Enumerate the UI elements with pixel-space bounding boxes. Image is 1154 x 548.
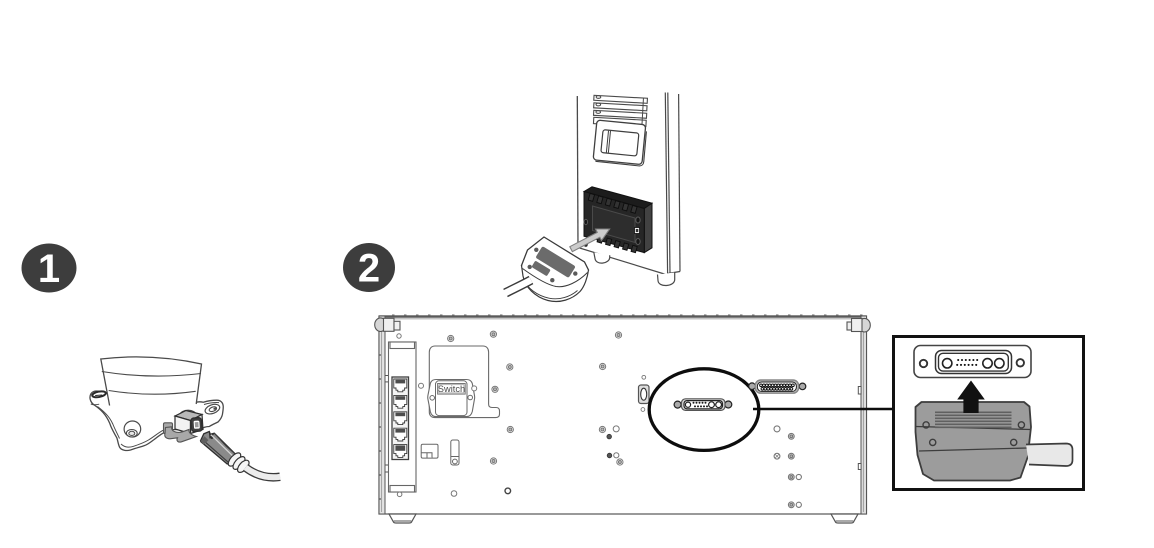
svg-text:2: 2 <box>358 247 380 291</box>
svg-text:1: 1 <box>38 247 60 291</box>
svg-text:Switch: Switch <box>438 384 465 394</box>
